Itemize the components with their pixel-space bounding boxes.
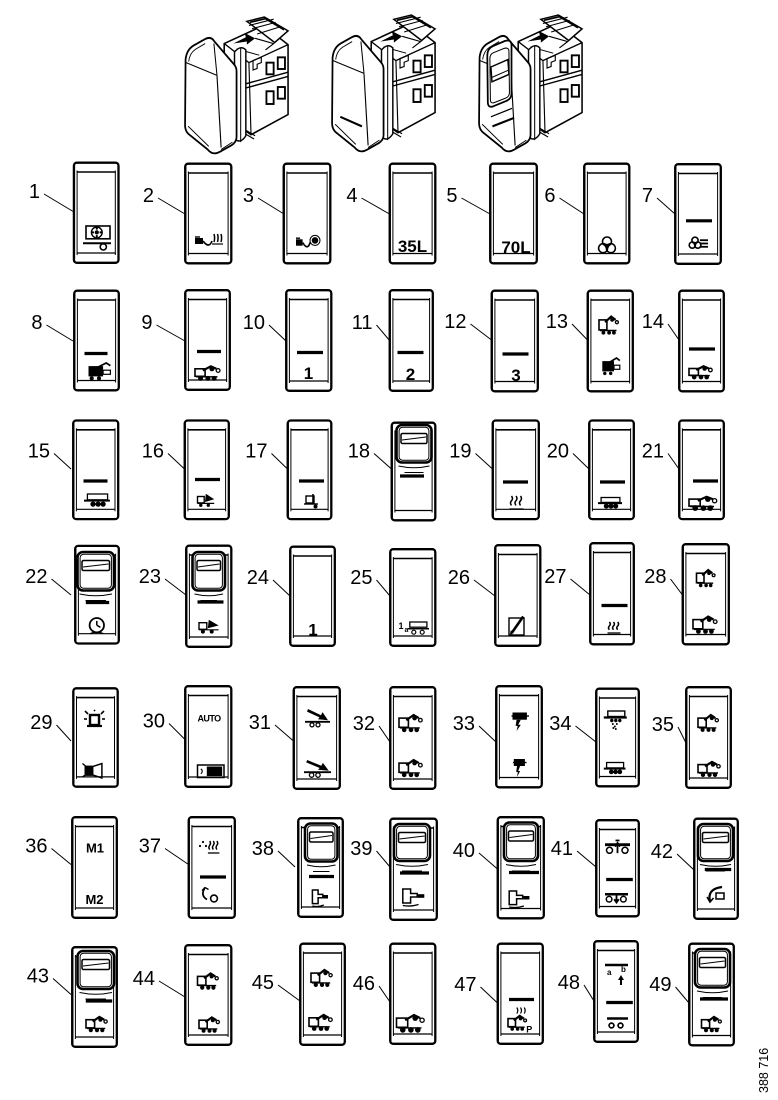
- svg-text:1: 1: [304, 364, 313, 383]
- svg-text:4: 4: [346, 185, 357, 207]
- svg-text:22: 22: [25, 566, 47, 588]
- svg-text:15: 15: [28, 441, 50, 463]
- svg-text:16: 16: [142, 441, 164, 463]
- svg-text:b: b: [621, 965, 626, 974]
- svg-text:1: 1: [398, 621, 403, 631]
- svg-text:2: 2: [406, 365, 415, 384]
- svg-text:5: 5: [446, 185, 457, 207]
- svg-text:27: 27: [544, 566, 566, 588]
- svg-text:21: 21: [642, 441, 664, 463]
- svg-text:44: 44: [133, 968, 155, 990]
- svg-text:26: 26: [448, 567, 470, 589]
- svg-text:388 716: 388 716: [757, 1048, 771, 1093]
- svg-text:38: 38: [252, 838, 274, 860]
- svg-text:28: 28: [644, 566, 666, 588]
- svg-text:41: 41: [551, 838, 573, 860]
- svg-text:47: 47: [454, 974, 476, 996]
- svg-text:10: 10: [243, 312, 265, 334]
- svg-text:46: 46: [353, 973, 375, 995]
- svg-text:P: P: [526, 1025, 532, 1035]
- svg-text:9: 9: [141, 312, 152, 334]
- svg-text:14: 14: [642, 311, 664, 333]
- svg-text:AUTO: AUTO: [198, 714, 222, 724]
- svg-text:35: 35: [652, 714, 674, 736]
- svg-text:31: 31: [249, 712, 271, 734]
- svg-text:18: 18: [348, 441, 370, 463]
- svg-text:40: 40: [453, 840, 475, 862]
- svg-text:2: 2: [143, 185, 154, 207]
- svg-text:12: 12: [444, 311, 466, 333]
- svg-text:3: 3: [243, 185, 254, 207]
- svg-text:19: 19: [449, 441, 471, 463]
- svg-text:36: 36: [25, 836, 47, 858]
- svg-text:33: 33: [453, 713, 475, 735]
- svg-text:a: a: [405, 627, 409, 634]
- svg-text:1: 1: [308, 621, 317, 640]
- svg-text:32: 32: [353, 713, 375, 735]
- svg-text:20: 20: [547, 441, 569, 463]
- svg-text:M1: M1: [86, 841, 104, 856]
- svg-text:70L: 70L: [501, 238, 530, 257]
- svg-text:35L: 35L: [398, 237, 427, 256]
- svg-text:42: 42: [651, 841, 673, 863]
- svg-text:29: 29: [30, 712, 52, 734]
- svg-text:a: a: [607, 968, 612, 977]
- svg-text:11: 11: [352, 312, 373, 334]
- svg-text:7: 7: [642, 185, 653, 207]
- svg-text:34: 34: [549, 713, 571, 735]
- svg-text:39: 39: [350, 838, 372, 860]
- svg-text:1: 1: [29, 181, 40, 203]
- svg-text:17: 17: [245, 441, 267, 463]
- svg-text:37: 37: [139, 836, 161, 858]
- svg-text:43: 43: [27, 966, 49, 988]
- svg-text:49: 49: [649, 974, 671, 996]
- svg-text:48: 48: [558, 972, 580, 994]
- svg-text:45: 45: [252, 972, 274, 994]
- svg-text:3: 3: [511, 366, 520, 385]
- svg-text:6: 6: [544, 185, 555, 207]
- svg-text:24: 24: [247, 567, 269, 589]
- svg-text:30: 30: [143, 711, 165, 733]
- svg-text:13: 13: [546, 311, 568, 333]
- svg-text:8: 8: [31, 312, 42, 334]
- svg-text:25: 25: [350, 567, 372, 589]
- svg-text:23: 23: [139, 566, 161, 588]
- svg-text:M2: M2: [85, 892, 103, 907]
